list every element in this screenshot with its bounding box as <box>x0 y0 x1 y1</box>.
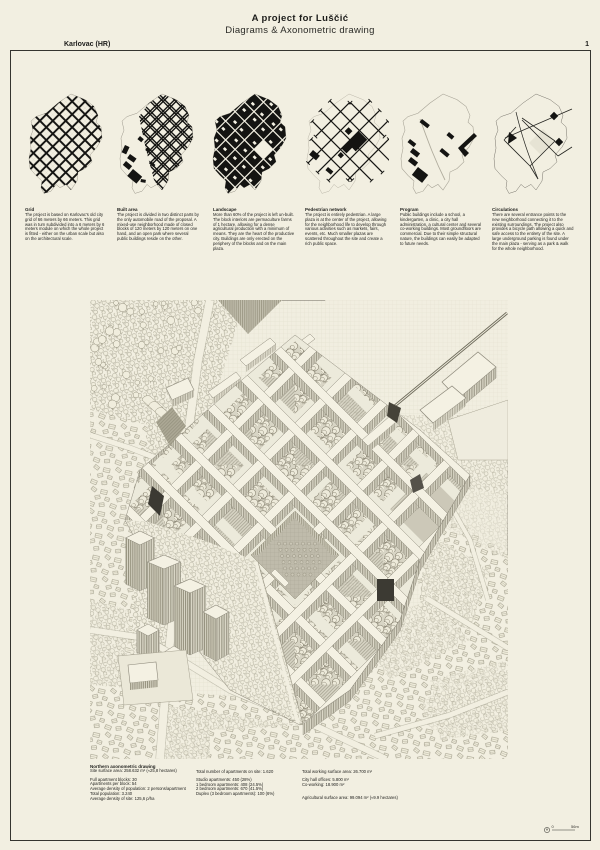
svg-text:0: 0 <box>552 824 555 829</box>
svg-text:56m: 56m <box>571 824 579 829</box>
